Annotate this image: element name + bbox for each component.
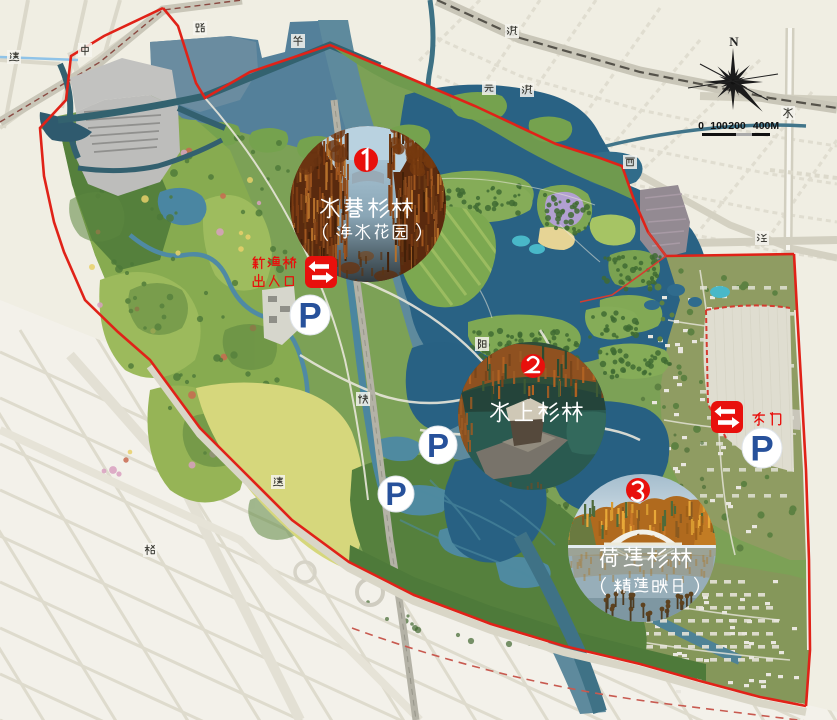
svg-text:400M: 400M: [753, 120, 780, 132]
svg-text:0: 0: [698, 120, 704, 132]
svg-text:N: N: [729, 34, 739, 49]
svg-text:P: P: [298, 296, 321, 335]
svg-text:P: P: [385, 476, 406, 512]
svg-text:100: 100: [710, 120, 728, 132]
svg-text:200: 200: [728, 120, 746, 132]
svg-text:P: P: [427, 427, 449, 464]
svg-text:P: P: [750, 429, 773, 468]
